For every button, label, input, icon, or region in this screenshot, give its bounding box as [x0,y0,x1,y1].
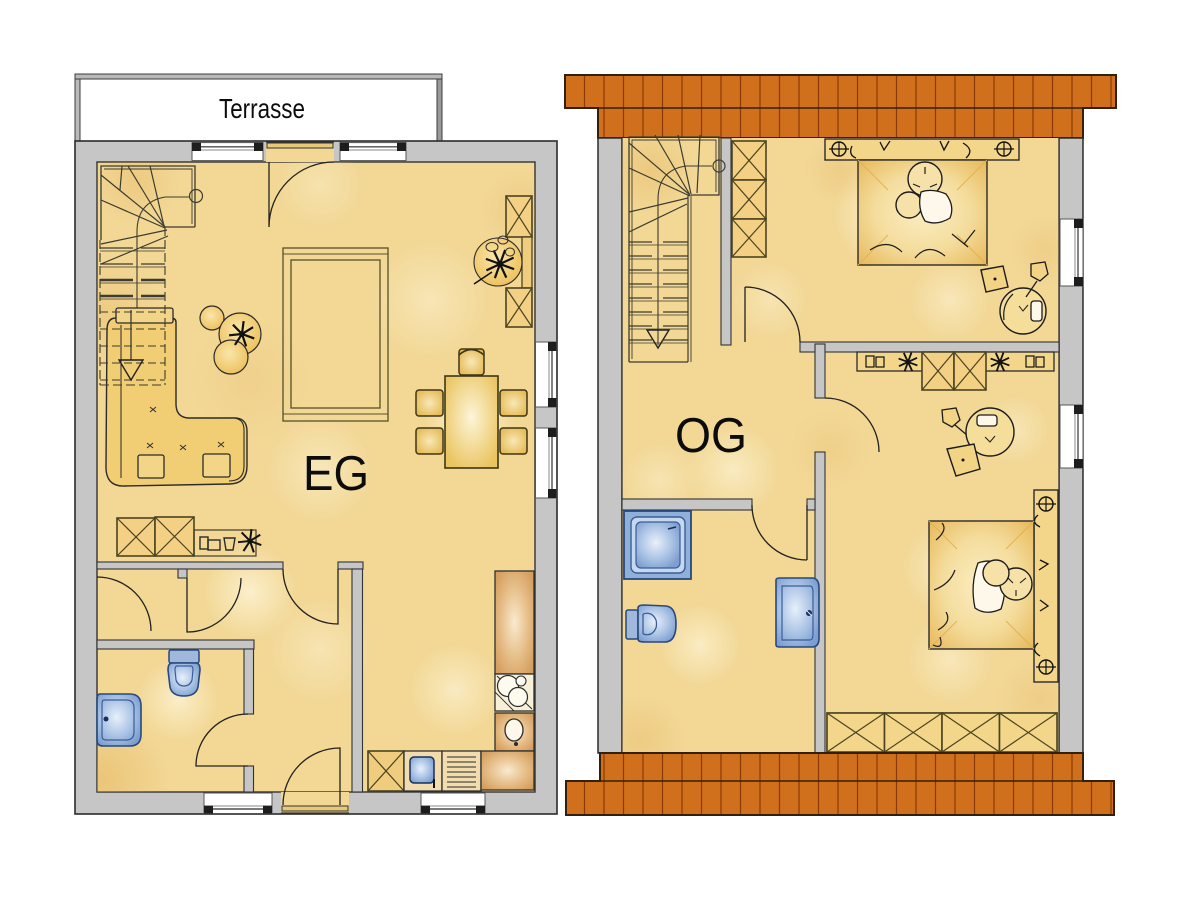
svg-text:EG: EG [303,447,369,501]
svg-text:OG: OG [675,409,747,463]
svg-text:Terrasse: Terrasse [219,93,305,124]
